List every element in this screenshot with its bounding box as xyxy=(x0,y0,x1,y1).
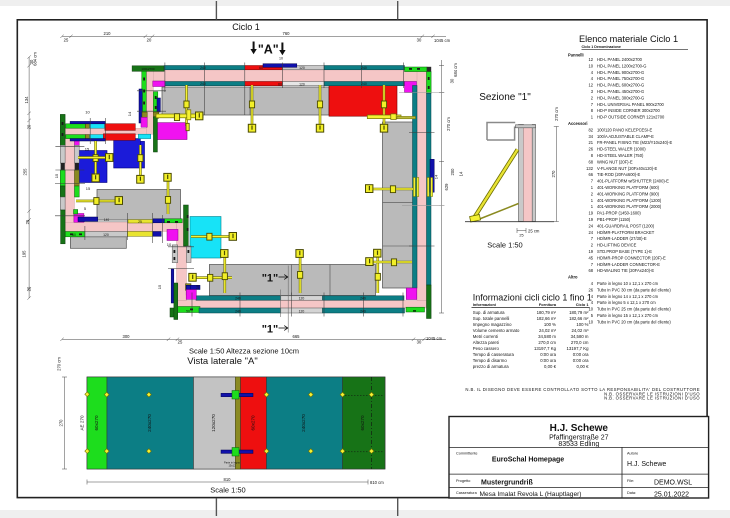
svg-text:HD-L PANEL 600x2700-G: HD-L PANEL 600x2700-G xyxy=(597,83,644,88)
svg-text:180,79 m²: 180,79 m² xyxy=(569,310,589,315)
svg-text:10: 10 xyxy=(167,242,172,247)
svg-text:AE 270: AE 270 xyxy=(80,415,85,431)
svg-text:810 cm: 810 cm xyxy=(370,480,384,485)
svg-text:HD-P INSIDE CORNER 300x2700: HD-P INSIDE CORNER 300x2700 xyxy=(597,108,660,113)
svg-text:HD-P OUTSIDE CORNER 121x2700: HD-P OUTSIDE CORNER 121x2700 xyxy=(597,115,665,120)
svg-text:20: 20 xyxy=(27,124,32,129)
svg-text:Scale 1:50 Altezza sezione 1: Scale 1:50 Altezza sezione 10cm xyxy=(189,347,299,356)
svg-text:Tempo di disarmo: Tempo di disarmo xyxy=(473,358,508,363)
svg-text:HD-L PANEL 750x2700-G: HD-L PANEL 750x2700-G xyxy=(597,76,644,81)
svg-text:270,0 cm: 270,0 cm xyxy=(571,340,589,345)
svg-text:File:: File: xyxy=(627,479,634,483)
svg-text:34,580 m: 34,580 m xyxy=(571,334,589,339)
svg-text:30: 30 xyxy=(417,340,422,345)
svg-text:HD-LIFTING DEVICE: HD-LIFTING DEVICE xyxy=(597,243,637,248)
svg-text:760: 760 xyxy=(283,31,291,36)
svg-text:HD-STEEL WALER (750): HD-STEEL WALER (750) xyxy=(597,153,644,158)
svg-text:Fornitura: Fornitura xyxy=(539,302,557,307)
svg-text:15: 15 xyxy=(157,284,162,289)
svg-text:1045 cm: 1045 cm xyxy=(434,38,451,43)
svg-text:HD/MR-PROP CONNECTOR (20F)-E: HD/MR-PROP CONNECTOR (20F)-E xyxy=(597,255,666,260)
svg-text:10: 10 xyxy=(588,319,593,324)
svg-text:0:00 ora: 0:00 ora xyxy=(573,352,589,357)
svg-text:prezzo di armatura: prezzo di armatura xyxy=(473,364,509,369)
svg-text:1045 cm: 1045 cm xyxy=(426,336,443,341)
svg-text:134: 134 xyxy=(24,96,29,104)
svg-text:68: 68 xyxy=(588,268,593,273)
svg-text:Elenco materiale Ciclo 1: Elenco materiale Ciclo 1 xyxy=(579,34,678,44)
svg-text:30: 30 xyxy=(450,78,455,83)
svg-text:82: 82 xyxy=(588,127,593,132)
svg-text:19: 19 xyxy=(588,217,593,222)
svg-text:12: 12 xyxy=(588,57,593,62)
svg-text:0,00 €: 0,00 € xyxy=(577,364,590,369)
svg-text:45: 45 xyxy=(588,255,593,260)
svg-text:Peso cassero: Peso cassero xyxy=(473,346,500,351)
svg-text:15: 15 xyxy=(85,146,90,151)
svg-text:140: 140 xyxy=(104,218,110,222)
svg-text:Tubo in PVC 25 cm (da parte de: Tubo in PVC 25 cm (da parte del cliente) xyxy=(597,307,671,312)
svg-text:100 %: 100 % xyxy=(576,322,588,327)
svg-text:19: 19 xyxy=(588,249,593,254)
svg-text:401-WORKING PLATFORM (1200): 401-WORKING PLATFORM (1200) xyxy=(597,198,662,203)
svg-text:N.B. OSSERVARE LE ISTRUZIONI D: N.B. OSSERVARE LE ISTRUZIONI D'USO xyxy=(604,396,700,401)
svg-text:H.J. Schewe: H.J. Schewe xyxy=(550,423,609,434)
svg-text:120: 120 xyxy=(299,310,305,314)
svg-text:Pannelli: Pannelli xyxy=(568,53,584,58)
svg-text:STD.PROP BASE (TYPE 1)-E: STD.PROP BASE (TYPE 1)-E xyxy=(597,249,652,254)
svg-text:Scale 1:50: Scale 1:50 xyxy=(210,486,245,495)
svg-text:24: 24 xyxy=(588,230,593,235)
svg-text:270 cm: 270 cm xyxy=(554,107,559,121)
svg-text:270 cm: 270 cm xyxy=(446,117,451,131)
svg-text:Progetto: Progetto xyxy=(456,479,470,483)
svg-text:Tubo in PVC 30 cm (da parte de: Tubo in PVC 30 cm (da parte del cliente) xyxy=(597,287,671,292)
svg-text:270: 270 xyxy=(59,419,64,427)
svg-text:34,580 m: 34,580 m xyxy=(538,334,556,339)
svg-text:HD-WALING TIE (20FAx240)-E: HD-WALING TIE (20FAx240)-E xyxy=(597,268,654,273)
svg-text:629: 629 xyxy=(444,183,449,191)
svg-text:Sup. totale pannelli: Sup. totale pannelli xyxy=(473,316,510,321)
svg-text:"1": "1" xyxy=(262,273,279,285)
svg-text:Impegno magazzino: Impegno magazzino xyxy=(473,322,512,327)
svg-text:HD-L PANEL 1200x2700-G: HD-L PANEL 1200x2700-G xyxy=(597,63,646,68)
svg-text:665: 665 xyxy=(293,334,301,339)
svg-text:21: 21 xyxy=(588,140,593,145)
svg-text:25: 25 xyxy=(519,234,523,238)
svg-text:HD-L PANEL 900x2700-G: HD-L PANEL 900x2700-G xyxy=(597,70,644,75)
svg-text:25: 25 xyxy=(27,286,32,291)
svg-text:50: 50 xyxy=(186,310,190,314)
svg-text:15: 15 xyxy=(86,186,91,191)
svg-text:WING NUT (20F)-E: WING NUT (20F)-E xyxy=(597,159,633,164)
svg-text:68: 68 xyxy=(588,159,593,164)
svg-text:182,66 m²: 182,66 m² xyxy=(537,316,557,321)
svg-text:60x270: 60x270 xyxy=(360,415,365,431)
svg-text:Ciclo 1: Ciclo 1 xyxy=(232,22,260,32)
svg-text:30: 30 xyxy=(29,59,34,64)
svg-text:Sezione "1": Sezione "1" xyxy=(479,92,531,103)
svg-text:240: 240 xyxy=(360,310,366,314)
svg-text:Informazioni cicli ciclo 1 fi: Informazioni cicli ciclo 1 fino 1 xyxy=(473,293,592,303)
svg-text:Mustergrundriß: Mustergrundriß xyxy=(481,479,533,486)
svg-text:182,66 m²: 182,66 m² xyxy=(569,316,589,321)
svg-text:24,02 m³: 24,02 m³ xyxy=(539,328,557,333)
svg-text:300: 300 xyxy=(123,334,131,339)
svg-text:24,02 m³: 24,02 m³ xyxy=(572,328,590,333)
svg-text:240: 240 xyxy=(235,297,241,301)
svg-text:19: 19 xyxy=(588,211,593,216)
svg-text:25: 25 xyxy=(64,38,69,43)
svg-text:PB1-PROP (1150): PB1-PROP (1150) xyxy=(597,217,631,222)
svg-text:10: 10 xyxy=(588,63,593,68)
svg-text:270,0 cm: 270,0 cm xyxy=(538,340,556,345)
svg-text:15x12: 15x12 xyxy=(228,464,236,468)
svg-text:14: 14 xyxy=(459,171,464,176)
svg-text:HD-L PANEL 300x2700-G: HD-L PANEL 300x2700-G xyxy=(597,95,644,100)
svg-text:10: 10 xyxy=(85,110,90,115)
svg-text:25: 25 xyxy=(25,219,30,224)
svg-text:60x270: 60x270 xyxy=(94,415,99,431)
svg-text:240x270: 240x270 xyxy=(301,414,306,432)
svg-text:14: 14 xyxy=(127,111,132,116)
svg-text:V-FLANGE NUT (20Fx40x120)-E: V-FLANGE NUT (20Fx40x120)-E xyxy=(597,166,657,171)
svg-text:120: 120 xyxy=(299,297,305,301)
svg-text:Parte in legno 15 x 12,1 x 270: Parte in legno 15 x 12,1 x 270 cm xyxy=(597,313,659,318)
svg-text:25: 25 xyxy=(178,340,183,345)
svg-text:Ciclo 1: Ciclo 1 xyxy=(576,302,590,307)
svg-text:810: 810 xyxy=(224,477,232,482)
svg-text:0:00 ora: 0:00 ora xyxy=(573,358,589,363)
svg-text:240: 240 xyxy=(361,66,367,70)
svg-text:Accessori: Accessori xyxy=(568,121,588,126)
svg-text:15: 15 xyxy=(195,284,200,289)
svg-text:60: 60 xyxy=(278,82,282,86)
svg-text:H.J. Schewe: H.J. Schewe xyxy=(627,461,666,468)
svg-text:Parte in legno 5 x 12,1 x 270: Parte in legno 5 x 12,1 x 270 cm xyxy=(597,300,656,305)
svg-text:Ciclo 1 Denominazione: Ciclo 1 Denominazione xyxy=(582,45,621,49)
svg-text:12: 12 xyxy=(588,83,593,88)
svg-text:132: 132 xyxy=(586,166,594,171)
svg-text:DEMO.WSL: DEMO.WSL xyxy=(654,479,692,486)
svg-text:120: 120 xyxy=(299,82,305,86)
svg-text:60x270: 60x270 xyxy=(251,415,256,431)
svg-text:14: 14 xyxy=(434,174,439,179)
svg-text:34: 34 xyxy=(588,134,593,139)
svg-text:270 cm: 270 cm xyxy=(57,357,62,371)
svg-text:83533 Edling: 83533 Edling xyxy=(558,441,599,448)
svg-text:270: 270 xyxy=(551,170,556,178)
svg-text:Committente: Committente xyxy=(456,452,478,456)
svg-text:13197,7 Kg: 13197,7 Kg xyxy=(567,346,590,351)
svg-text:HD-L PANEL 2400x2700: HD-L PANEL 2400x2700 xyxy=(597,57,643,62)
svg-text:Data:: Data: xyxy=(627,491,636,495)
svg-text:EuroSchal Homepage: EuroSchal Homepage xyxy=(492,457,564,464)
svg-text:240: 240 xyxy=(200,82,206,86)
svg-text:240: 240 xyxy=(200,66,206,70)
svg-text:PA1-PROP (1450-1600): PA1-PROP (1450-1600) xyxy=(597,211,641,216)
svg-text:0:00 ora: 0:00 ora xyxy=(540,358,556,363)
svg-text:100/A ADJUSTABLE CLAMP-E: 100/A ADJUSTABLE CLAMP-E xyxy=(597,134,654,139)
svg-text:TIE-ROD (20FAx600)-E: TIE-ROD (20FAx600)-E xyxy=(597,172,640,177)
svg-text:Informazioni: Informazioni xyxy=(473,302,496,307)
svg-text:Parte in legno 14 x 12,1 x 270: Parte in legno 14 x 12,1 x 270 cm xyxy=(597,294,659,299)
svg-text:401-WORKING PLATFORM (900): 401-WORKING PLATFORM (900) xyxy=(597,191,660,196)
svg-text:240x270: 240x270 xyxy=(147,414,152,432)
svg-text:240: 240 xyxy=(235,310,241,314)
svg-text:13197,7 Kg: 13197,7 Kg xyxy=(534,346,557,351)
svg-text:15: 15 xyxy=(54,173,59,178)
svg-text:FR-PANEL FIXING TIE (M23/Y10x2: FR-PANEL FIXING TIE (M23/Y10x240)-E xyxy=(597,140,672,145)
svg-text:Altezza pareti: Altezza pareti xyxy=(473,340,499,345)
svg-text:Metri correnti: Metri correnti xyxy=(473,334,498,339)
svg-text:120x270: 120x270 xyxy=(211,414,216,432)
svg-text:401-WORKING PLATFORM (600): 401-WORKING PLATFORM (600) xyxy=(597,185,660,190)
svg-text:100/120 PANO KELEPCESI-E: 100/120 PANO KELEPCESI-E xyxy=(597,127,652,132)
svg-text:25 cm: 25 cm xyxy=(528,229,540,234)
svg-text:240: 240 xyxy=(360,297,366,301)
svg-text:401-GUARDRAIL POST (1200): 401-GUARDRAIL POST (1200) xyxy=(597,223,655,228)
svg-text:Autore: Autore xyxy=(627,452,638,456)
svg-text:Sup. di armatura: Sup. di armatura xyxy=(473,310,505,315)
svg-text:210: 210 xyxy=(104,31,112,36)
svg-text:200: 200 xyxy=(450,168,455,176)
svg-text:180,79 m²: 180,79 m² xyxy=(537,310,557,315)
svg-text:66: 66 xyxy=(588,172,593,177)
svg-text:684 cm: 684 cm xyxy=(453,63,458,77)
svg-text:HD/MR-LADDER CONNECTOR-E: HD/MR-LADDER CONNECTOR-E xyxy=(597,262,660,267)
svg-text:255: 255 xyxy=(23,168,28,176)
svg-text:100 %: 100 % xyxy=(544,322,556,327)
svg-text:HD-L PANEL 450x2700-G: HD-L PANEL 450x2700-G xyxy=(597,89,644,94)
svg-text:"A": "A" xyxy=(258,43,279,57)
svg-text:401-WORKING PLATFORM (2000): 401-WORKING PLATFORM (2000) xyxy=(597,204,662,209)
svg-text:25: 25 xyxy=(138,220,142,224)
svg-text:Altro: Altro xyxy=(568,275,578,280)
svg-text:30: 30 xyxy=(417,38,422,43)
svg-text:Mesa Imalat Revola L (Hauptlag: Mesa Imalat Revola L (Hauptlager) xyxy=(480,491,582,498)
svg-text:401-PLATFORM w/SHUTTER (2400)-: 401-PLATFORM w/SHUTTER (2400)-E xyxy=(597,179,669,184)
svg-text:195: 195 xyxy=(22,250,27,258)
svg-text:0:00 ora: 0:00 ora xyxy=(540,352,556,357)
svg-text:24: 24 xyxy=(588,223,593,228)
svg-text:120: 120 xyxy=(299,66,305,70)
svg-text:Volume cemento armato: Volume cemento armato xyxy=(473,328,520,333)
svg-text:Parte in legno 10 x 12,1 x 270: Parte in legno 10 x 12,1 x 270 cm xyxy=(597,281,659,286)
svg-text:26: 26 xyxy=(588,147,593,152)
svg-text:HD/MR-LADDER (27/30)-E: HD/MR-LADDER (27/30)-E xyxy=(597,236,647,241)
svg-text:Scale 1:50: Scale 1:50 xyxy=(487,241,522,250)
svg-text:120: 120 xyxy=(103,233,109,237)
svg-text:25.01.2022: 25.01.2022 xyxy=(654,491,689,498)
svg-text:20: 20 xyxy=(147,38,152,43)
svg-text:Tempo di casseratura: Tempo di casseratura xyxy=(473,352,515,357)
svg-text:HD-STEEL WALER (1000): HD-STEEL WALER (1000) xyxy=(597,147,646,152)
svg-text:240: 240 xyxy=(361,82,367,86)
svg-text:Vista laterale "A": Vista laterale "A" xyxy=(187,356,257,367)
svg-text:Casseratura: Casseratura xyxy=(456,491,478,495)
svg-text:Tubo in PVC 20 cm (da parte de: Tubo in PVC 20 cm (da parte del cliente) xyxy=(597,319,671,324)
svg-text:0,00 €: 0,00 € xyxy=(544,364,557,369)
svg-text:100x2700: 100x2700 xyxy=(141,67,155,71)
svg-text:HD/MR-PLATFORM BRACKET: HD/MR-PLATFORM BRACKET xyxy=(597,230,655,235)
svg-text:60: 60 xyxy=(259,66,263,70)
svg-text:10: 10 xyxy=(279,57,283,61)
svg-text:"1": "1" xyxy=(262,324,279,336)
svg-text:HD-L UNIVERSAL PANEL 900x2700: HD-L UNIVERSAL PANEL 900x2700 xyxy=(597,102,665,107)
